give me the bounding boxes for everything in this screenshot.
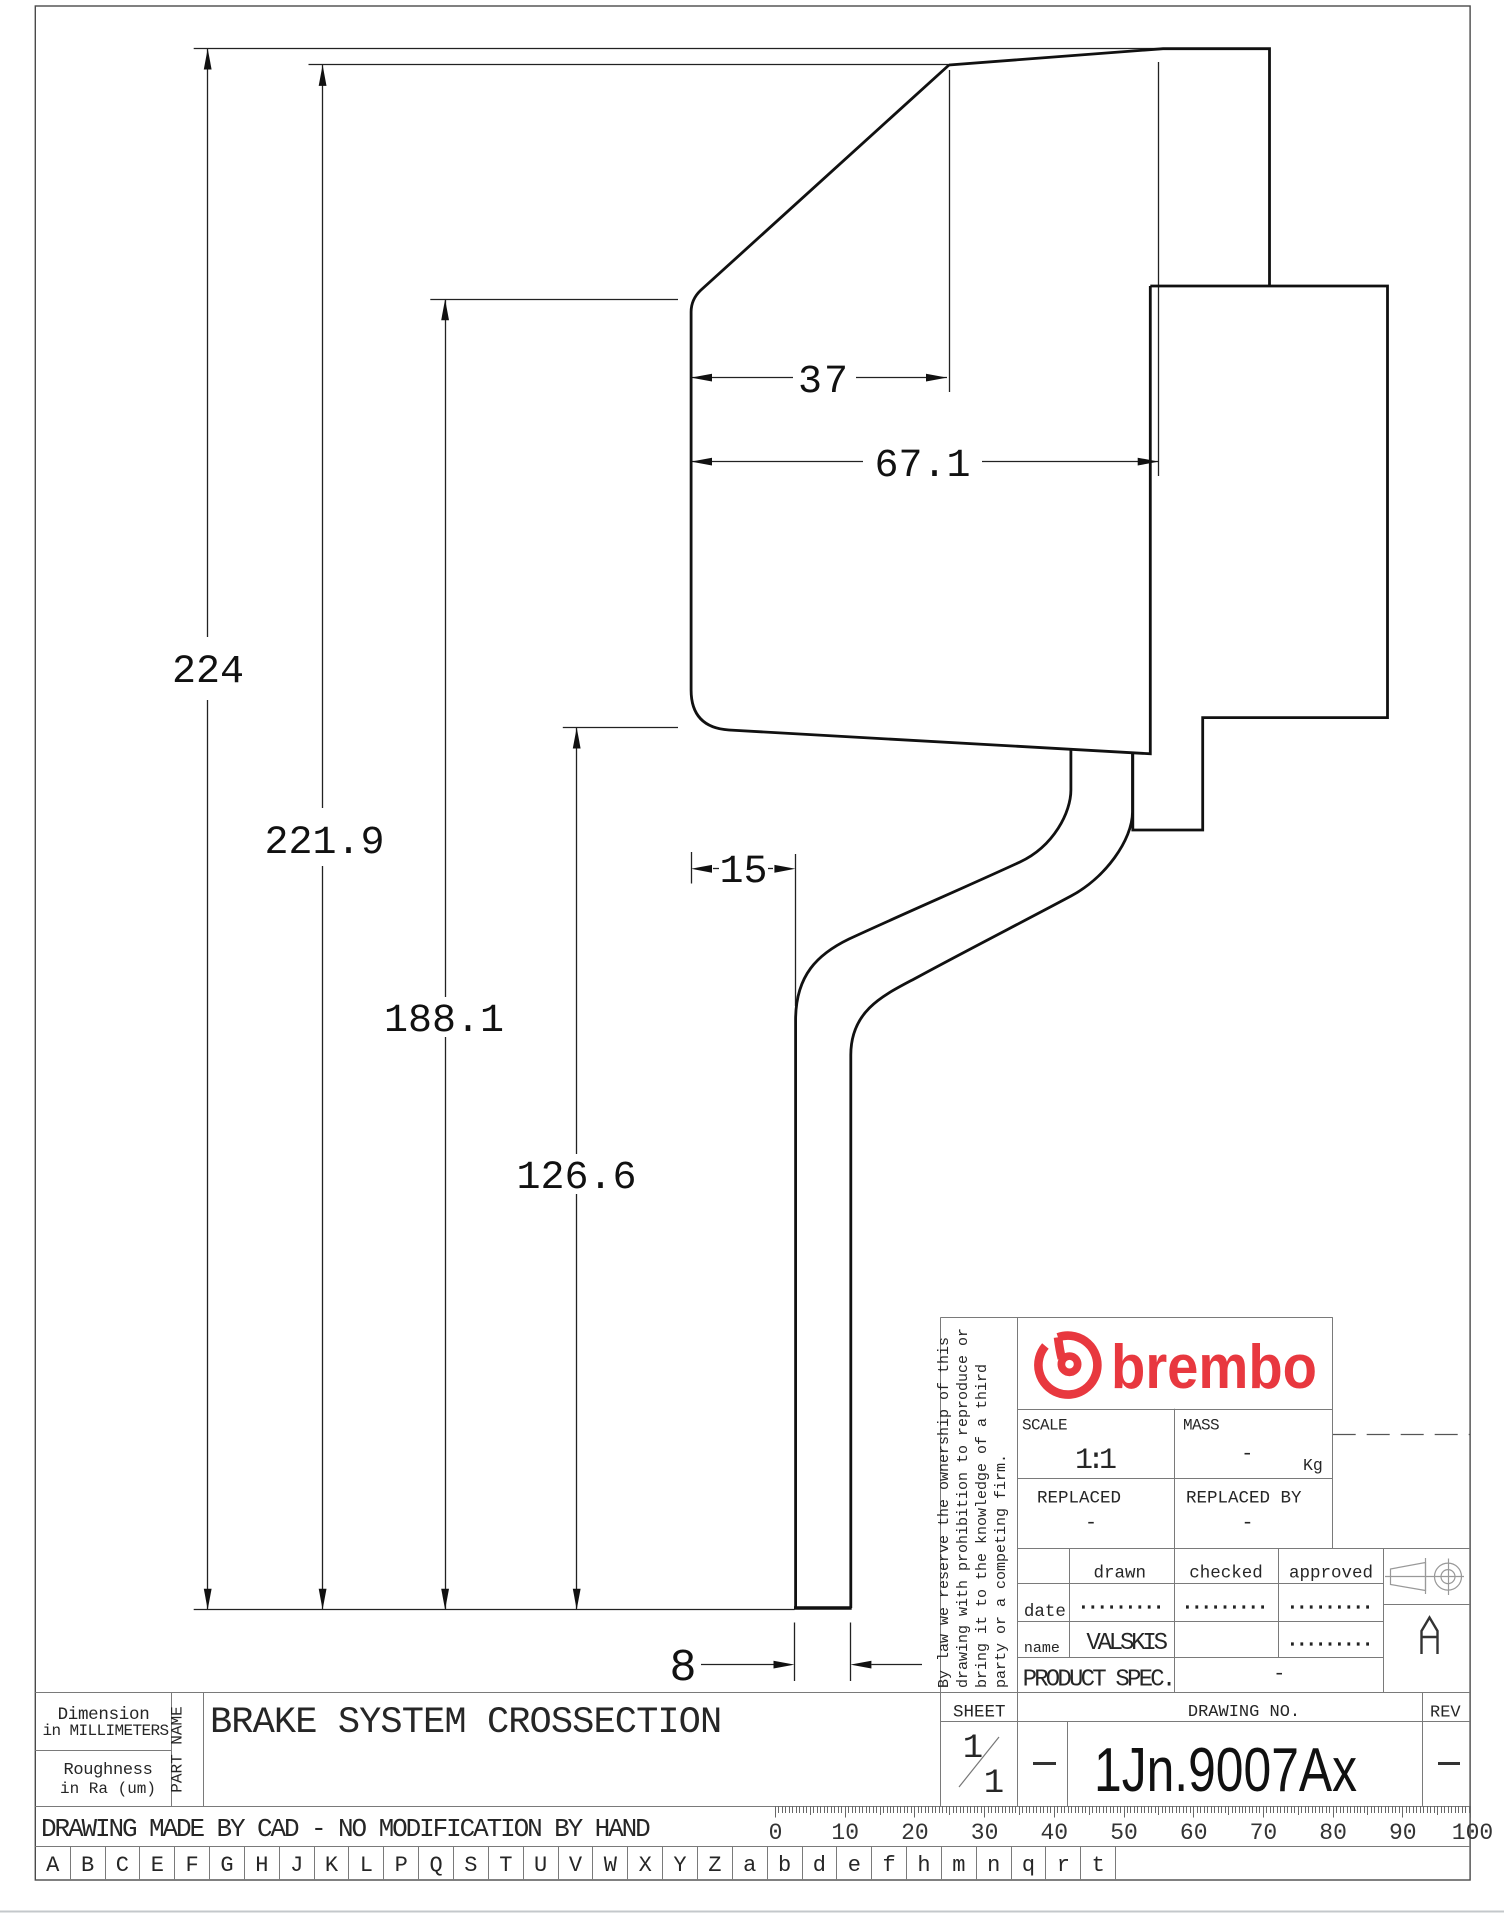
- svg-text:1:1: 1:1: [1075, 1444, 1116, 1478]
- svg-text:d: d: [813, 1853, 826, 1878]
- svg-text:G: G: [220, 1853, 233, 1878]
- svg-text:brembo: brembo: [1111, 1333, 1317, 1402]
- svg-text:a: a: [743, 1853, 756, 1878]
- svg-text:r: r: [1057, 1853, 1070, 1878]
- svg-text:P: P: [395, 1853, 408, 1878]
- svg-text:b: b: [778, 1853, 791, 1878]
- svg-text:DRAWING NO.: DRAWING NO.: [1188, 1703, 1300, 1722]
- svg-text:drawing with prohibition to re: drawing with prohibition to reproduce or: [955, 1328, 972, 1688]
- svg-text:70: 70: [1250, 1820, 1278, 1846]
- svg-text:126.6: 126.6: [516, 1156, 636, 1201]
- svg-text:PRODUCT SPEC.: PRODUCT SPEC.: [1023, 1667, 1174, 1694]
- svg-text:m: m: [952, 1853, 965, 1878]
- svg-text:Kg: Kg: [1303, 1456, 1323, 1475]
- svg-text:1: 1: [963, 1730, 983, 1768]
- svg-text:-: -: [1085, 1512, 1097, 1535]
- svg-text:SHEET: SHEET: [953, 1703, 1006, 1723]
- svg-text:REPLACED: REPLACED: [1037, 1489, 1121, 1509]
- svg-text:1Jn.9007Ax: 1Jn.9007Ax: [1094, 1736, 1357, 1805]
- svg-text:80: 80: [1319, 1820, 1347, 1846]
- svg-text:BRAKE SYSTEM CROSSECTION: BRAKE SYSTEM CROSSECTION: [210, 1702, 721, 1744]
- svg-text:-: -: [1241, 1512, 1253, 1535]
- svg-text:20: 20: [901, 1820, 929, 1846]
- svg-text:Z: Z: [708, 1853, 721, 1878]
- svg-text:W: W: [604, 1853, 618, 1878]
- svg-text:224: 224: [172, 650, 244, 695]
- svg-text:name: name: [1024, 1640, 1060, 1657]
- svg-text:C: C: [116, 1853, 129, 1878]
- svg-text:K: K: [325, 1853, 339, 1878]
- svg-text:checked: checked: [1189, 1564, 1263, 1584]
- svg-text:REPLACED BY: REPLACED BY: [1186, 1489, 1302, 1509]
- svg-text:188.1: 188.1: [384, 999, 504, 1044]
- svg-text:J: J: [290, 1853, 303, 1878]
- svg-text:U: U: [534, 1853, 547, 1878]
- svg-text:date: date: [1024, 1602, 1066, 1622]
- svg-text:37: 37: [798, 360, 850, 405]
- svg-text:q: q: [1022, 1853, 1035, 1878]
- svg-text:F: F: [185, 1853, 198, 1878]
- svg-text:t: t: [1092, 1853, 1105, 1878]
- svg-text:221.9: 221.9: [264, 821, 384, 866]
- svg-text:-: -: [1241, 1443, 1253, 1466]
- svg-text:REV: REV: [1430, 1704, 1461, 1723]
- svg-text:40: 40: [1040, 1820, 1068, 1846]
- svg-text:n: n: [987, 1853, 1000, 1878]
- svg-text:V: V: [569, 1853, 583, 1878]
- svg-text:100: 100: [1452, 1820, 1493, 1846]
- svg-text:party or a competing firm.: party or a competing firm.: [993, 1454, 1010, 1688]
- svg-text:67.1: 67.1: [874, 444, 970, 489]
- svg-text:30: 30: [971, 1820, 999, 1846]
- svg-text:A: A: [46, 1853, 60, 1878]
- svg-text:L: L: [360, 1853, 373, 1878]
- svg-text:h: h: [917, 1853, 930, 1878]
- svg-text:15: 15: [719, 850, 767, 895]
- svg-text:MASS: MASS: [1183, 1417, 1219, 1435]
- svg-text:Roughness: Roughness: [63, 1761, 152, 1780]
- svg-text:B: B: [81, 1853, 94, 1878]
- svg-text:1: 1: [984, 1765, 1004, 1803]
- svg-text:in Ra (um): in Ra (um): [60, 1780, 156, 1798]
- svg-text:60: 60: [1180, 1820, 1208, 1846]
- svg-text:-: -: [1273, 1663, 1285, 1686]
- svg-text:Y: Y: [673, 1853, 686, 1878]
- svg-text:SCALE: SCALE: [1022, 1417, 1067, 1435]
- svg-text:H: H: [255, 1853, 268, 1878]
- svg-text:VALSKIS: VALSKIS: [1086, 1630, 1167, 1657]
- svg-text:E: E: [151, 1853, 164, 1878]
- svg-text:bring it to the knowledge of a: bring it to the knowledge of a third: [974, 1364, 991, 1688]
- svg-text:T: T: [499, 1853, 512, 1878]
- svg-text:approved: approved: [1289, 1564, 1373, 1584]
- svg-text:10: 10: [831, 1820, 859, 1846]
- svg-text:PART NAME: PART NAME: [169, 1706, 187, 1792]
- svg-text:0: 0: [769, 1820, 783, 1846]
- svg-text:Q: Q: [429, 1853, 442, 1878]
- svg-text:DRAWING MADE BY CAD - NO MODIF: DRAWING MADE BY CAD - NO MODIFICATION BY…: [41, 1814, 650, 1844]
- svg-text:By law we reserve the ownershi: By law we reserve the ownership of this: [936, 1337, 953, 1688]
- svg-text:X: X: [639, 1853, 652, 1878]
- svg-text:drawn: drawn: [1093, 1564, 1146, 1584]
- svg-text:90: 90: [1389, 1820, 1417, 1846]
- svg-text:e: e: [848, 1853, 861, 1878]
- svg-text:8: 8: [669, 1643, 696, 1694]
- svg-text:in MILLIMETERS: in MILLIMETERS: [42, 1722, 168, 1740]
- svg-text:50: 50: [1110, 1820, 1138, 1846]
- svg-text:S: S: [464, 1853, 477, 1878]
- svg-text:f: f: [882, 1853, 895, 1878]
